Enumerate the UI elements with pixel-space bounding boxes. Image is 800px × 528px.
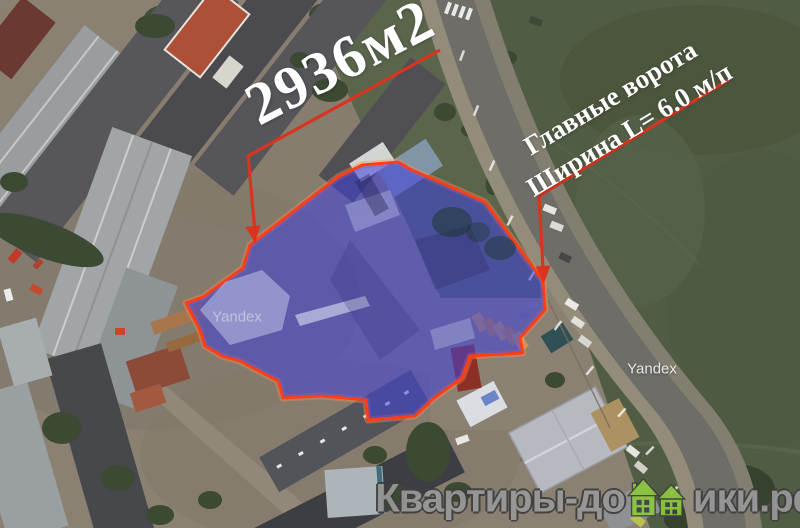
site-watermark-suffix: ики.рф: [693, 477, 800, 522]
yandex-watermark-faint: Yandex: [212, 309, 262, 326]
site-watermark-prefix: Квартиры-до: [375, 477, 625, 522]
site-watermark: Квартиры-до ики.рф: [375, 477, 800, 522]
green-houses-icon: [627, 474, 691, 518]
yandex-watermark: Yandex: [627, 361, 677, 378]
screenshot-root: 2936м2 Главные ворота Ширина L= 6.0 м/п …: [0, 0, 800, 528]
